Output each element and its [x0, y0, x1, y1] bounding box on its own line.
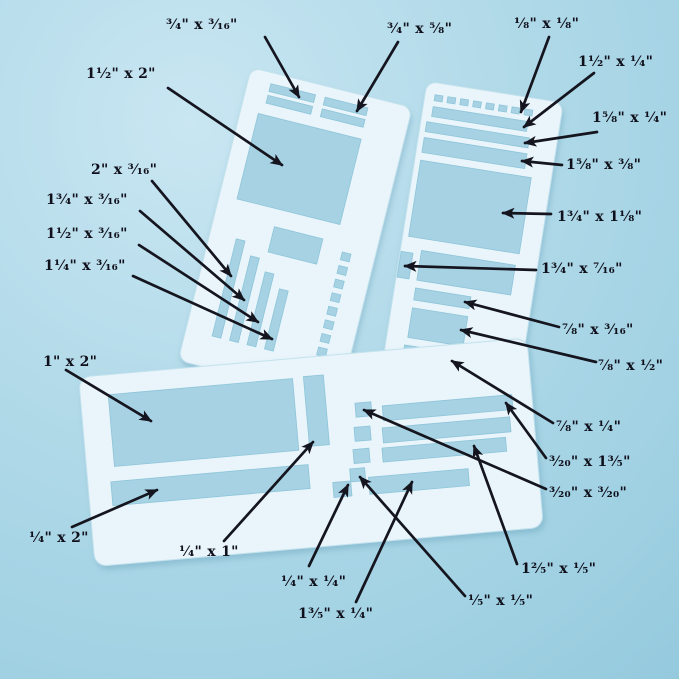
dimension-label-20: 1" x 2": [43, 354, 97, 370]
dimension-label-21: ¹⁄₄" x 2": [29, 530, 89, 546]
dimension-label-9: 1¹⁄₂" x ³⁄₁₆": [46, 226, 128, 242]
dimension-label-23: ¹⁄₄" x ¹⁄₄": [281, 574, 346, 590]
dimension-label-12: 1³⁄₄" x ⁷⁄₁₆": [541, 261, 623, 277]
cutout-small-square-2: [354, 426, 371, 441]
dimension-label-11: 1³⁄₄" x 1¹⁄₈": [557, 209, 642, 225]
dimension-label-15: ⁷⁄₈" x ¹⁄₄": [556, 419, 621, 435]
stencil-product-photo: ³⁄₄" x ³⁄₁₆" ³⁄₄" x ⁵⁄₈" ¹⁄₈" x ¹⁄₈" 1¹⁄…: [0, 0, 679, 679]
dimension-label-14: ⁷⁄₈" x ¹⁄₂": [598, 358, 663, 374]
dimension-label-17: ³⁄₂₀" x ³⁄₂₀": [549, 485, 627, 501]
stencil-bottom: [79, 338, 544, 566]
dimension-label-18: 1²⁄₅" x ¹⁄₅": [521, 561, 596, 577]
dimension-label-1: ³⁄₄" x ⁵⁄₈": [387, 21, 452, 37]
dimension-label-7: 2" x ³⁄₁₆": [91, 162, 157, 178]
dimension-label-16: ³⁄₂₀" x 1³⁄₅": [549, 454, 631, 470]
dimension-label-3: 1¹⁄₂" x ¹⁄₄": [578, 54, 653, 70]
dimension-label-24: 1³⁄₅" x ¹⁄₄": [298, 606, 373, 622]
dimension-label-10: 1¹⁄₄" x ³⁄₁₆": [44, 258, 126, 274]
dimension-label-8: 1³⁄₄" x ³⁄₁₆": [46, 192, 128, 208]
dimension-label-6: 1¹⁄₂" x 2": [86, 66, 156, 82]
dimension-label-5: 1⁵⁄₈" x ³⁄₈": [566, 157, 641, 173]
photo-canvas: ³⁄₄" x ³⁄₁₆" ³⁄₄" x ⁵⁄₈" ¹⁄₈" x ¹⁄₈" 1¹⁄…: [0, 0, 679, 679]
dimension-label-4: 1⁵⁄₈" x ¹⁄₄": [592, 110, 667, 126]
dimension-label-19: ¹⁄₅" x ¹⁄₅": [468, 593, 533, 609]
dimension-label-0: ³⁄₄" x ³⁄₁₆": [166, 17, 238, 33]
cutout-small-square-3: [353, 448, 370, 463]
dimension-label-22: ¹⁄₄" x 1": [179, 544, 239, 560]
dimension-label-2: ¹⁄₈" x ¹⁄₈": [514, 16, 579, 32]
arrow-annotation-11: [503, 213, 551, 214]
dimension-label-13: ⁷⁄₈" x ³⁄₁₆": [562, 322, 634, 338]
